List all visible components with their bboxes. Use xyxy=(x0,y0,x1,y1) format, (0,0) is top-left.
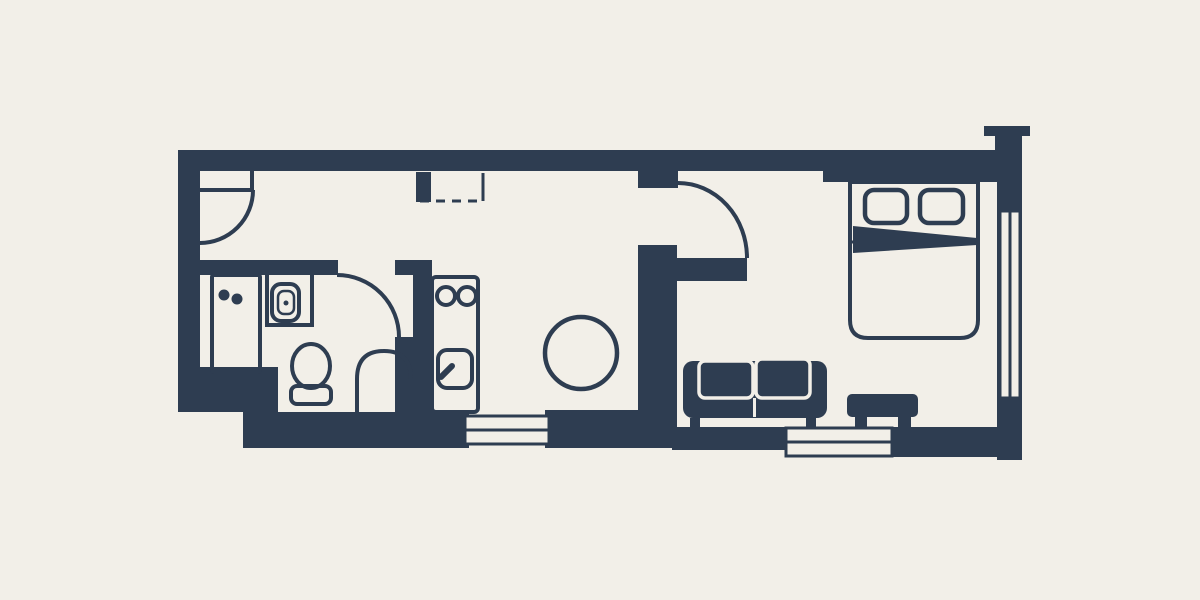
entry-door xyxy=(200,171,253,243)
round-dining-table xyxy=(545,317,617,389)
living-divider-return xyxy=(677,258,747,281)
bottom-wall-living xyxy=(672,427,790,450)
bottom-window-left xyxy=(465,416,549,444)
stove-burner-right xyxy=(458,287,476,305)
bathroom-kitchen-divider xyxy=(413,260,432,412)
kitchen-sink xyxy=(438,350,472,388)
right-wall-window xyxy=(1000,211,1020,398)
double-bed xyxy=(850,182,978,338)
bathroom-door-swing-arc xyxy=(337,275,399,337)
ottoman-leg-left xyxy=(855,417,867,428)
kitchen-fixtures xyxy=(420,173,617,412)
bottom-window-right xyxy=(786,428,892,456)
stove-burner-left xyxy=(437,287,455,305)
living-door-swing-arc xyxy=(678,183,747,258)
ottoman xyxy=(847,394,918,428)
washing-machine xyxy=(212,275,260,372)
sofa-leg-right xyxy=(806,418,816,428)
ottoman-leg-right xyxy=(898,417,911,428)
living-furniture xyxy=(683,359,918,428)
top-wall-bedroom-thick xyxy=(823,150,1000,182)
kitchen-sink-faucet xyxy=(441,366,452,377)
bedroom-furniture xyxy=(850,182,978,338)
vanity-sink-drain xyxy=(284,301,289,306)
sofa-cushion-right xyxy=(756,359,810,398)
folded-blanket-wedge xyxy=(853,226,977,253)
entry-door-swing-arc xyxy=(200,190,253,243)
sofa-cushion-left xyxy=(699,361,753,398)
ottoman-top xyxy=(847,394,918,417)
bottom-wall-bathroom xyxy=(243,412,469,448)
sofa-leg-left xyxy=(690,418,700,428)
bottom-wall-bedroom xyxy=(890,427,1022,457)
door-header-block xyxy=(638,150,678,188)
floor-plan-svg xyxy=(0,0,1200,600)
closet-stub-wall xyxy=(416,172,431,202)
living-divider-wall xyxy=(638,245,677,428)
washer-knob-right xyxy=(232,294,243,305)
bathroom-top-wall xyxy=(200,260,338,275)
floor-plan-canvas xyxy=(0,0,1200,600)
two-seat-sofa xyxy=(683,359,827,428)
pillow-right xyxy=(920,190,963,223)
toilet-bowl xyxy=(292,344,330,388)
washer-knob-left xyxy=(219,290,230,301)
pillow-left xyxy=(865,190,907,223)
